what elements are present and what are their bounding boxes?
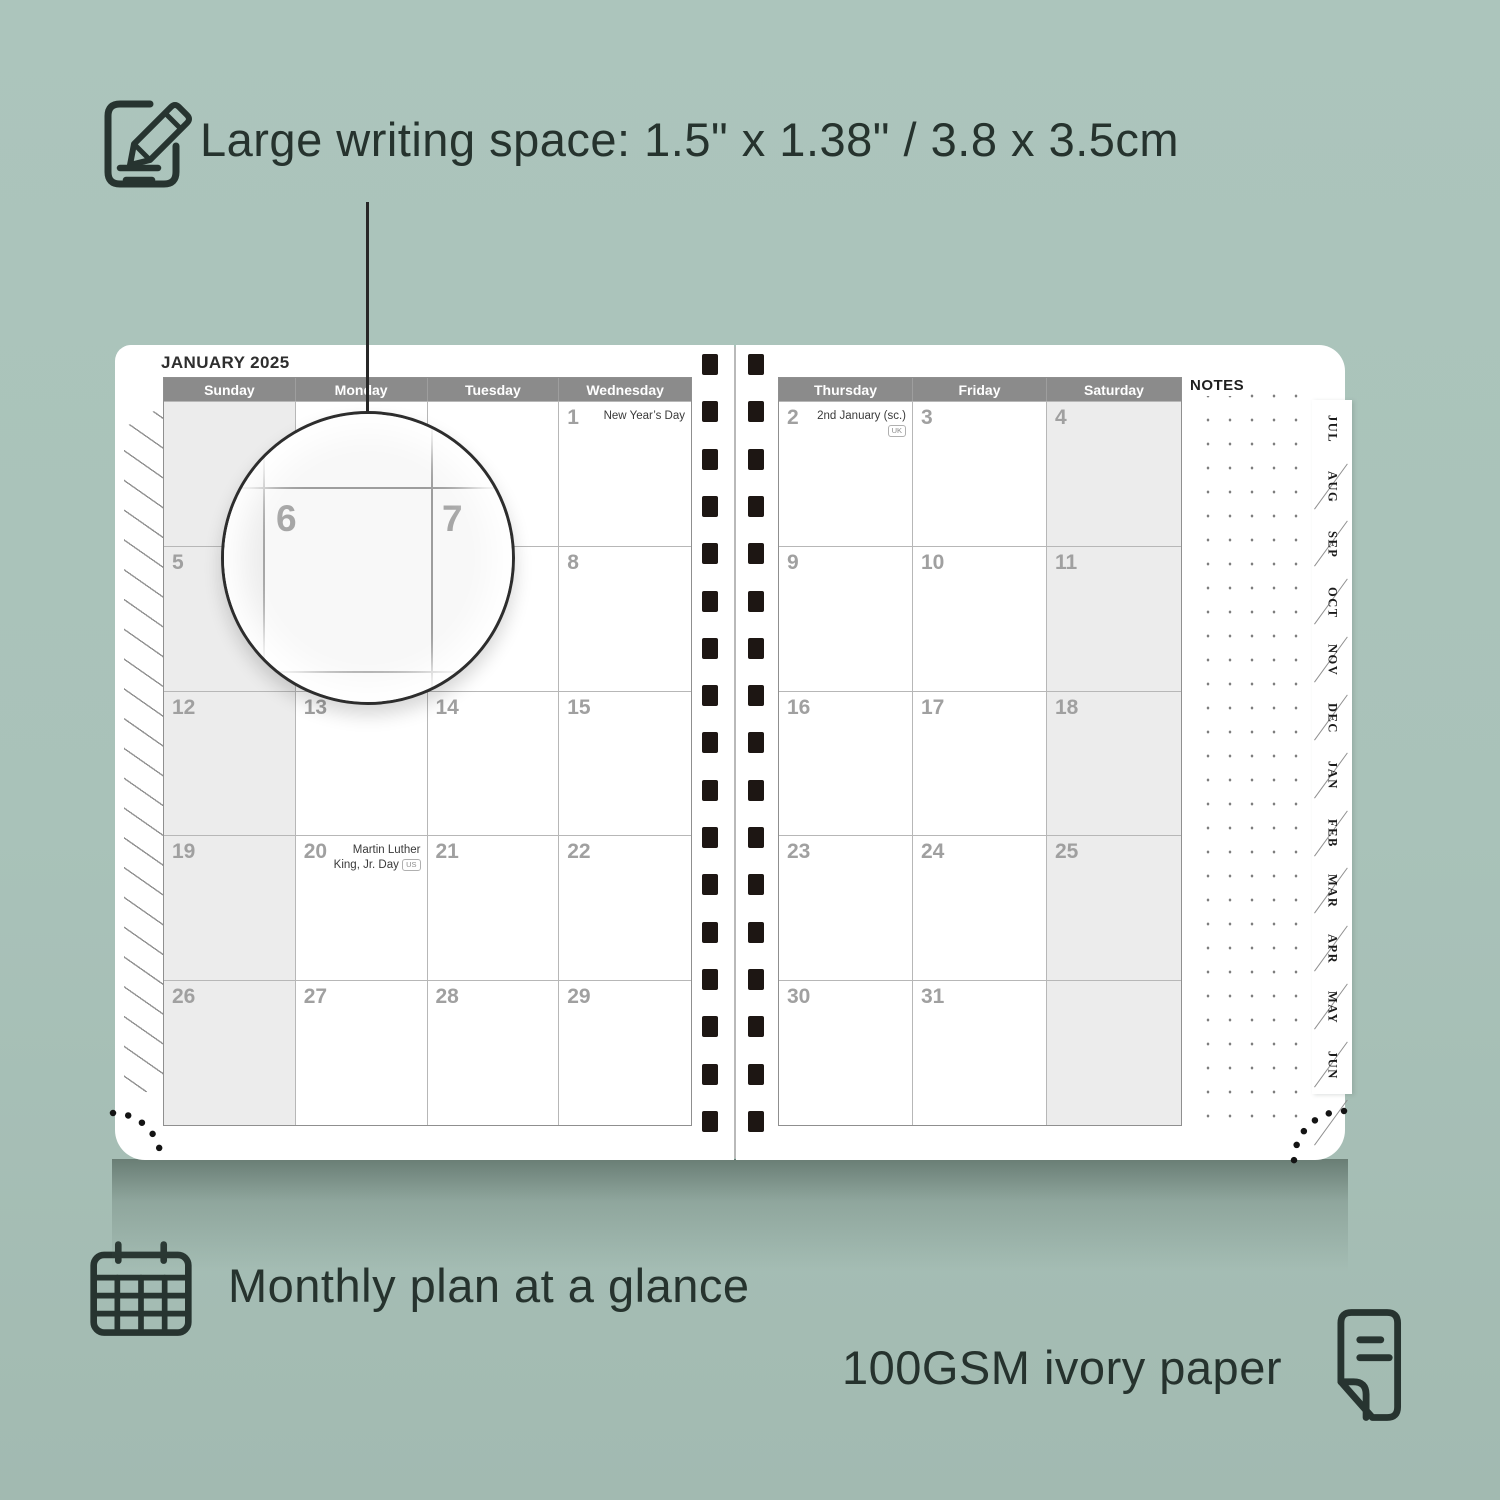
month-tab-label: DEC <box>1325 703 1340 734</box>
page-gap-line <box>734 347 736 1158</box>
calendar-cell-13: 13 <box>296 691 428 836</box>
date-number: 5 <box>164 547 184 574</box>
calendar-cell-11: 11 <box>1047 546 1181 691</box>
month-tab-mar: MAR <box>1312 863 1352 921</box>
month-tab-strip: JULAUGSEPOCTNOVDECJANFEBMARAPRMAYJUN <box>1312 400 1352 1094</box>
month-tab-label: JUN <box>1325 1051 1340 1080</box>
month-tab-label: JAN <box>1325 761 1340 790</box>
calendar-cell <box>1047 980 1181 1125</box>
calendar-cell-23: 23 <box>779 835 913 980</box>
month-tab-nov: NOV <box>1312 631 1352 689</box>
date-number: 21 <box>428 836 459 863</box>
calendar-cell-25: 25 <box>1047 835 1181 980</box>
calendar-cell-30: 30 <box>779 980 913 1125</box>
date-number: 17 <box>913 692 944 719</box>
calendar-cell-2: 22nd January (sc.) UK <box>779 401 913 546</box>
notebook-shadow <box>112 1159 1348 1271</box>
calendar-cell-29: 29 <box>559 980 691 1125</box>
month-title: JANUARY 2025 <box>161 353 290 373</box>
holiday-label: New Year’s Day <box>604 402 691 424</box>
calendar-cell-4: 4 <box>1047 401 1181 546</box>
calendar-grid-right: ThursdayFridaySaturday22nd January (sc.)… <box>778 377 1182 1126</box>
calendar-cell-24: 24 <box>913 835 1047 980</box>
holiday-label: 2nd January (sc.) UK <box>810 402 912 439</box>
date-number: 19 <box>164 836 195 863</box>
planner-right-page: ThursdayFridaySaturday22nd January (sc.)… <box>736 345 1345 1160</box>
day-header-wednesday: Wednesday <box>559 378 691 401</box>
date-number: 16 <box>779 692 810 719</box>
calendar-cell-20: 20Martin Luther King, Jr. Day US <box>296 835 428 980</box>
paper-sheet-icon <box>1322 1308 1406 1422</box>
country-badge: US <box>402 859 420 871</box>
notes-label: NOTES <box>1188 376 1249 396</box>
calendar-cell-10: 10 <box>913 546 1047 691</box>
calendar-cell-3: 3 <box>913 401 1047 546</box>
month-tab-label: JUL <box>1325 415 1340 443</box>
calendar-cell-8: 8 <box>559 546 691 691</box>
day-header-saturday: Saturday <box>1047 378 1181 401</box>
month-tab-dec: DEC <box>1312 689 1352 747</box>
date-number: 22 <box>559 836 590 863</box>
day-header-sunday: Sunday <box>164 378 296 401</box>
date-number: 12 <box>164 692 195 719</box>
date-number <box>1047 981 1055 985</box>
notepad-pencil-icon <box>92 82 192 190</box>
calendar-cell-16: 16 <box>779 691 913 836</box>
date-number: 20 <box>296 836 327 863</box>
calendar-cell-14: 14 <box>428 691 560 836</box>
month-tab-aug: AUG <box>1312 458 1352 516</box>
calendar-cell-19: 19 <box>164 835 296 980</box>
magnifier-glow <box>224 414 512 702</box>
month-tab-label: MAR <box>1325 874 1340 908</box>
calendar-cell-28: 28 <box>428 980 560 1125</box>
calendar-cell-1: 1New Year’s Day <box>559 401 691 546</box>
day-header-tuesday: Tuesday <box>428 378 560 401</box>
date-number: 23 <box>779 836 810 863</box>
date-number: 2 <box>779 402 799 429</box>
month-tab-label: FEB <box>1325 819 1340 848</box>
calendar-cell-17: 17 <box>913 691 1047 836</box>
month-tab-label: AUG <box>1325 471 1340 503</box>
month-tab-oct: OCT <box>1312 573 1352 631</box>
date-number: 29 <box>559 981 590 1008</box>
calendar-cell-18: 18 <box>1047 691 1181 836</box>
calendar-cell-15: 15 <box>559 691 691 836</box>
date-number: 10 <box>913 547 944 574</box>
month-tab-apr: APR <box>1312 920 1352 978</box>
month-tab-jan: JAN <box>1312 747 1352 805</box>
date-number: 27 <box>296 981 327 1008</box>
month-tab-feb: FEB <box>1312 805 1352 863</box>
month-tab-jun: JUN <box>1312 1036 1352 1094</box>
month-tab-jul: JUL <box>1312 400 1352 458</box>
date-number: 11 <box>1047 547 1077 574</box>
date-number: 30 <box>779 981 810 1008</box>
date-number: 4 <box>1047 402 1067 429</box>
date-number: 1 <box>559 402 579 429</box>
date-number <box>428 402 436 406</box>
date-number <box>164 402 172 406</box>
page-edge-hatch <box>124 405 165 1105</box>
month-tab-label: MAY <box>1325 991 1340 1024</box>
day-header-thursday: Thursday <box>779 378 913 401</box>
date-number: 24 <box>913 836 944 863</box>
feature-paper-label: 100GSM ivory paper <box>842 1340 1282 1395</box>
notes-dot-grid: NOTES <box>1188 377 1316 1123</box>
product-image: Large writing space: 1.5" x 1.38" / 3.8 … <box>0 0 1500 1500</box>
date-number <box>296 402 304 406</box>
date-number: 18 <box>1047 692 1078 719</box>
holiday-label: Martin Luther King, Jr. Day US <box>327 836 426 873</box>
date-number: 8 <box>559 547 579 574</box>
calendar-cell-21: 21 <box>428 835 560 980</box>
month-tab-sep: SEP <box>1312 516 1352 574</box>
month-tab-label: APR <box>1325 934 1340 964</box>
date-number: 31 <box>913 981 944 1008</box>
calendar-cell-31: 31 <box>913 980 1047 1125</box>
date-number: 25 <box>1047 836 1078 863</box>
date-number: 15 <box>559 692 590 719</box>
date-number: 9 <box>779 547 799 574</box>
date-number: 28 <box>428 981 459 1008</box>
calendar-cell-26: 26 <box>164 980 296 1125</box>
month-tab-label: OCT <box>1325 587 1340 619</box>
day-header-monday: Monday <box>296 378 428 401</box>
calendar-cell-9: 9 <box>779 546 913 691</box>
magnifier-pointer-line <box>366 202 369 414</box>
month-tab-label: NOV <box>1325 644 1340 676</box>
calendar-cell-27: 27 <box>296 980 428 1125</box>
feature-writing-space-label: Large writing space: 1.5" x 1.38" / 3.8 … <box>200 112 1179 167</box>
magnifier-circle: 6 7 <box>221 411 515 705</box>
month-tab-label: SEP <box>1325 531 1340 558</box>
date-number: 3 <box>913 402 933 429</box>
country-badge: UK <box>888 425 906 437</box>
calendar-cell-12: 12 <box>164 691 296 836</box>
calendar-cell-22: 22 <box>559 835 691 980</box>
month-tab-may: MAY <box>1312 978 1352 1036</box>
date-number: 26 <box>164 981 195 1008</box>
day-header-friday: Friday <box>913 378 1047 401</box>
